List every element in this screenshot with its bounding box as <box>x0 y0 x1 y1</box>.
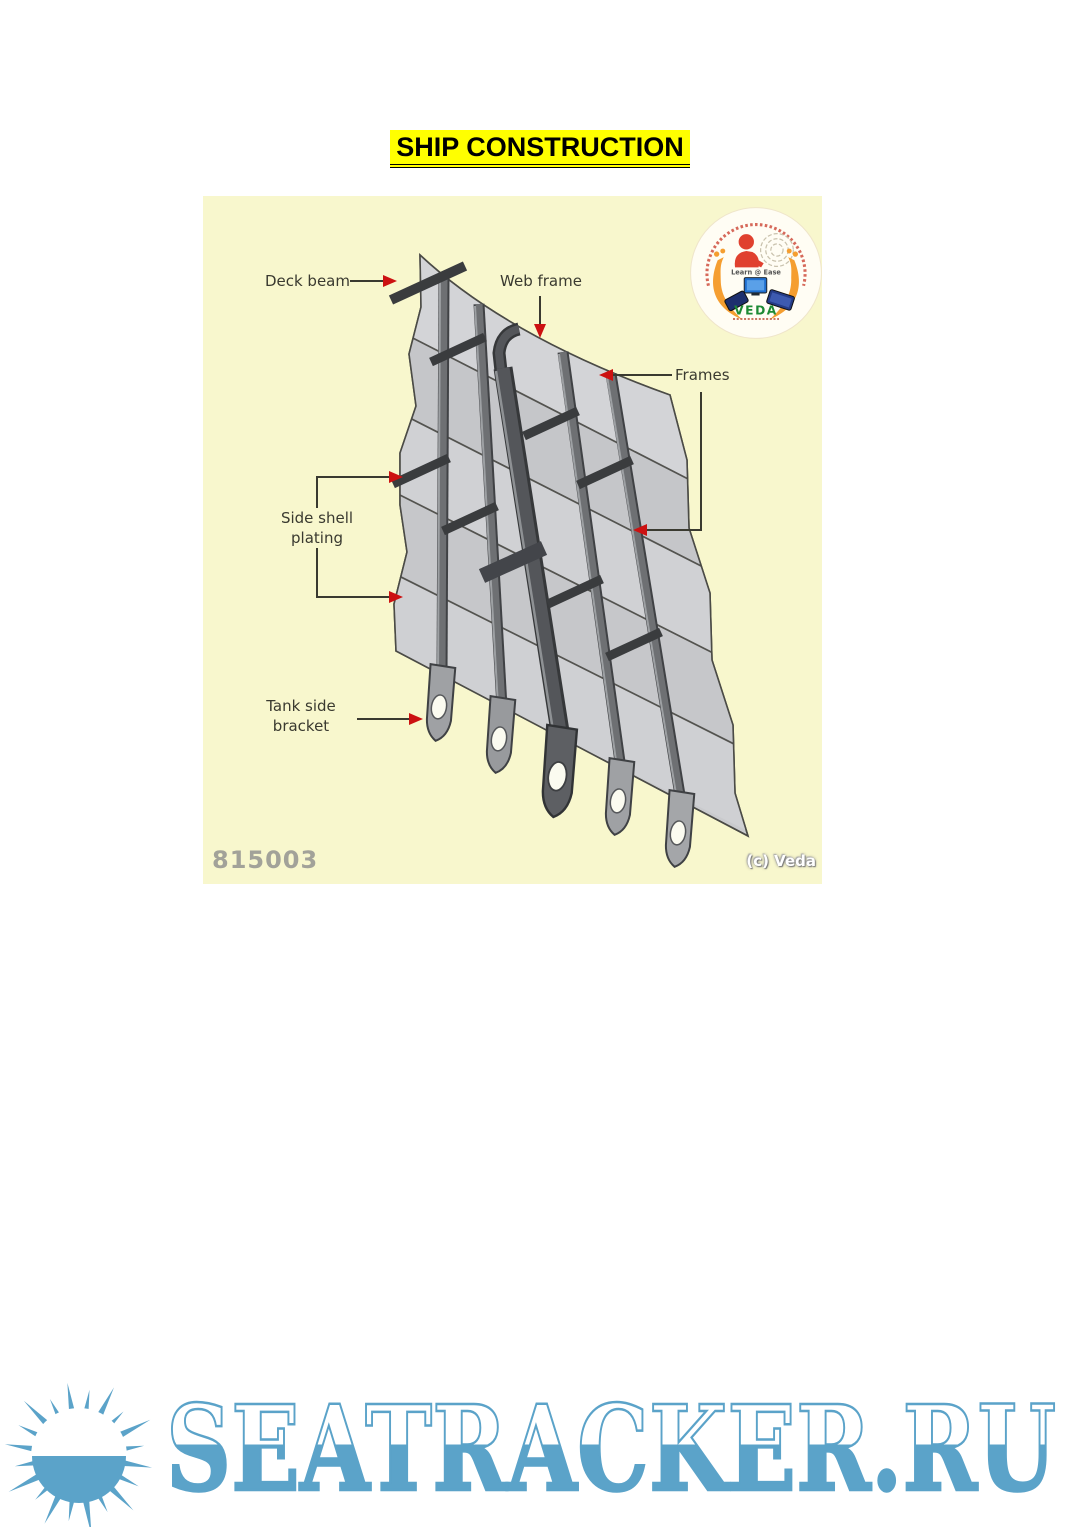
arrowhead <box>383 275 397 287</box>
tank-side-bracket-shape <box>598 758 638 837</box>
figure-number: 815003 <box>212 846 318 874</box>
veda-logo: Learn @ Ease VEDA <box>687 204 825 342</box>
label-tank-side-bracket: Tank side bracket <box>245 696 357 736</box>
label-side-shell-line1: Side shell <box>261 508 373 528</box>
label-tank-bracket-line1: Tank side <box>245 696 357 716</box>
web-frame-bracket-shape <box>533 725 581 819</box>
tank-side-bracket-shape <box>419 664 459 743</box>
seatracker-sun-icon <box>4 1377 169 1527</box>
title-row: SHIP CONSTRUCTION <box>0 130 1080 168</box>
logo-name: VEDA <box>734 303 778 317</box>
frame-bar <box>438 278 444 675</box>
sun-dome <box>31 1408 127 1456</box>
label-frames: Frames <box>675 365 745 385</box>
label-side-shell-plating: Side shell plating <box>261 508 373 548</box>
tank-side-bracket-shape <box>658 790 698 869</box>
label-deck-beam: Deck beam <box>240 271 350 291</box>
document-page: SHIP CONSTRUCTION <box>0 0 1080 1527</box>
sun-sea-half <box>32 1456 126 1503</box>
copyright-text: (c) Veda <box>746 852 816 870</box>
page-title: SHIP CONSTRUCTION <box>390 130 690 168</box>
seatracker-watermark: SEATRACKER.RU <box>158 1385 1068 1520</box>
label-tank-bracket-line2: bracket <box>245 716 357 736</box>
watermark-text: SEATRACKER.RU <box>166 1385 1056 1518</box>
logo-tagline: Learn @ Ease <box>731 269 781 277</box>
arrowhead <box>409 713 423 725</box>
computer-icon <box>744 278 766 296</box>
tank-side-bracket-shape <box>479 696 519 775</box>
label-side-shell-line2: plating <box>261 528 373 548</box>
label-web-frame: Web frame <box>497 271 585 291</box>
ship-construction-diagram: Deck beam Web frame Frames Side shell pl… <box>203 196 822 884</box>
